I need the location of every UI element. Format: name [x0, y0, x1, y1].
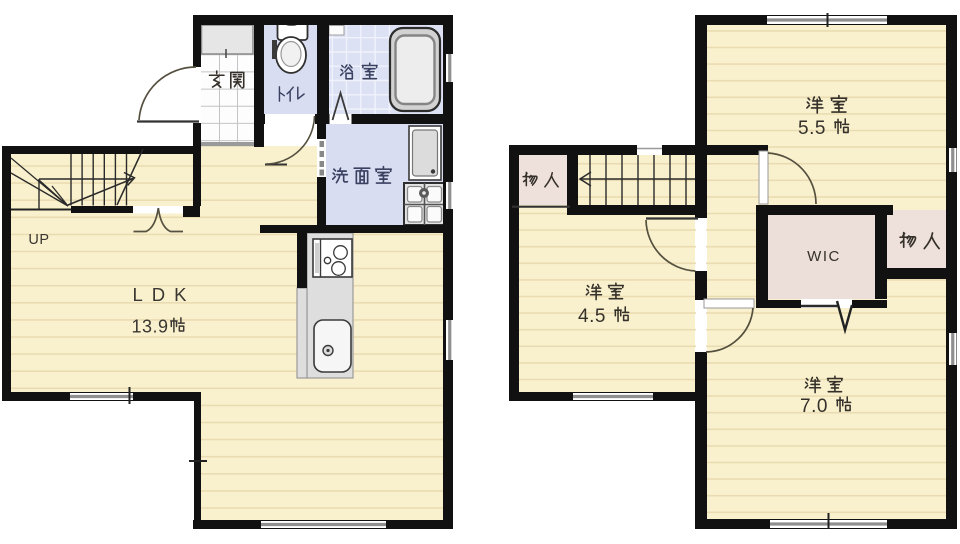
- svg-text:WIC: WIC: [807, 248, 841, 265]
- svg-text:UP: UP: [28, 232, 49, 248]
- svg-text:4.5: 4.5: [578, 306, 606, 327]
- svg-text:7.0: 7.0: [800, 396, 828, 417]
- svg-text:LDK: LDK: [133, 284, 196, 305]
- svg-text:13.9: 13.9: [131, 317, 168, 337]
- svg-text:5.5: 5.5: [798, 118, 826, 139]
